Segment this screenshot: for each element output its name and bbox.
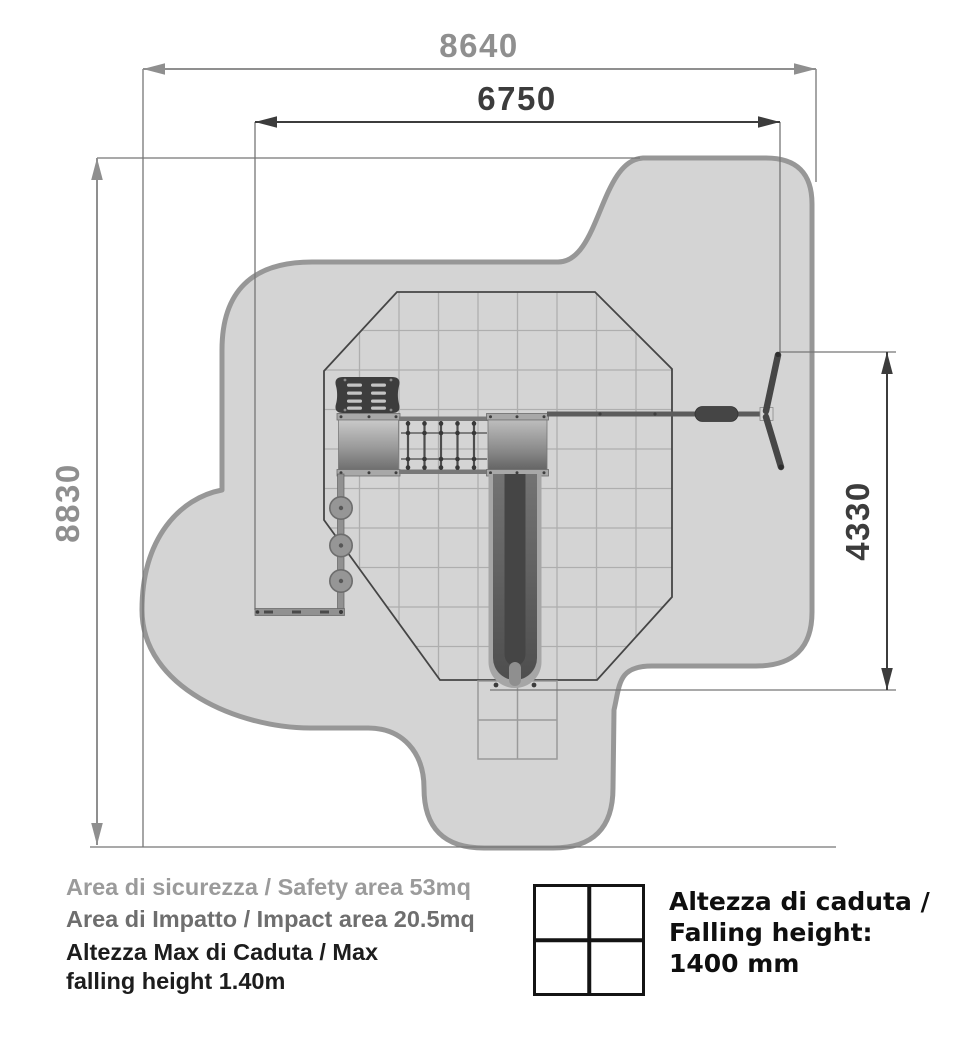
dim-total-width-label: 8640 [439,27,518,64]
dimension-inner-height: 4330 [839,352,893,690]
falling-height-line2: Falling height: [669,917,930,948]
climbing-wall [335,377,399,413]
dim-inner-height-label: 4330 [839,481,876,560]
plan-drawing: 8640 6750 8830 4330 [0,0,960,858]
platform-right [487,414,549,477]
max-fall-text-line1: Altezza Max di Caduta / Max [66,938,475,967]
safety-area-text: Area di sicurezza / Safety area 53mq [66,872,475,902]
stepping-pods [330,497,352,592]
tile-grid-hline [536,938,642,942]
platform-left [337,414,400,477]
dimension-total-height: 8830 [49,158,103,845]
tile-grid-icon [533,884,645,996]
max-fall-text-line2: falling height 1.40m [66,967,475,996]
dimension-inner-width: 6750 [255,80,780,128]
playground-safety-plan: 8640 6750 8830 4330 Area di sicurezza / … [0,0,960,1045]
dim-inner-width-label: 6750 [477,80,556,117]
safety-area-shape [142,158,812,848]
falling-height-line3: 1400 mm [669,948,930,979]
impact-area-text: Area di Impatto / Impact area 20.5mq [66,904,475,934]
falling-height-text: Altezza di caduta / Falling height: 1400… [669,886,930,979]
falling-height-line1: Altezza di caduta / [669,886,930,917]
legend: Area di sicurezza / Safety area 53mq Are… [66,872,475,996]
dimension-total-width: 8640 [143,27,816,75]
falling-height-box: Altezza di caduta / Falling height: 1400… [533,884,930,996]
dim-total-height-label: 8830 [49,463,86,542]
slide [489,474,542,688]
